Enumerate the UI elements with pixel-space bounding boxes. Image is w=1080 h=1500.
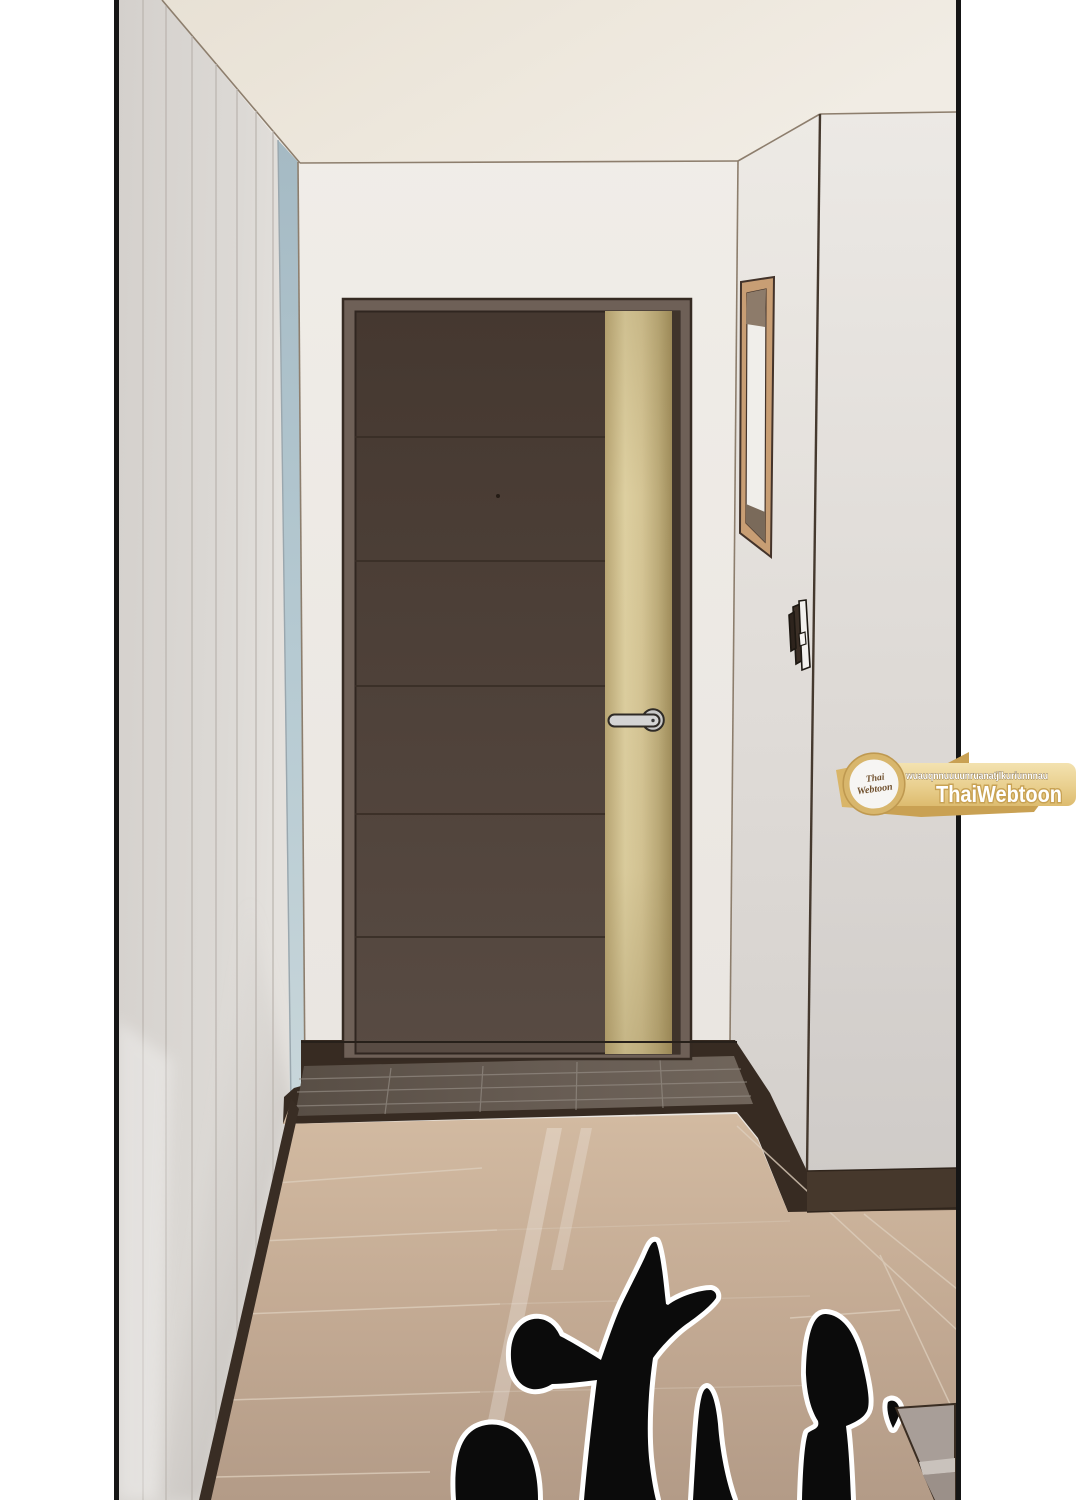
svg-text:ThaiWebtoon: ThaiWebtoon [936, 781, 1062, 807]
